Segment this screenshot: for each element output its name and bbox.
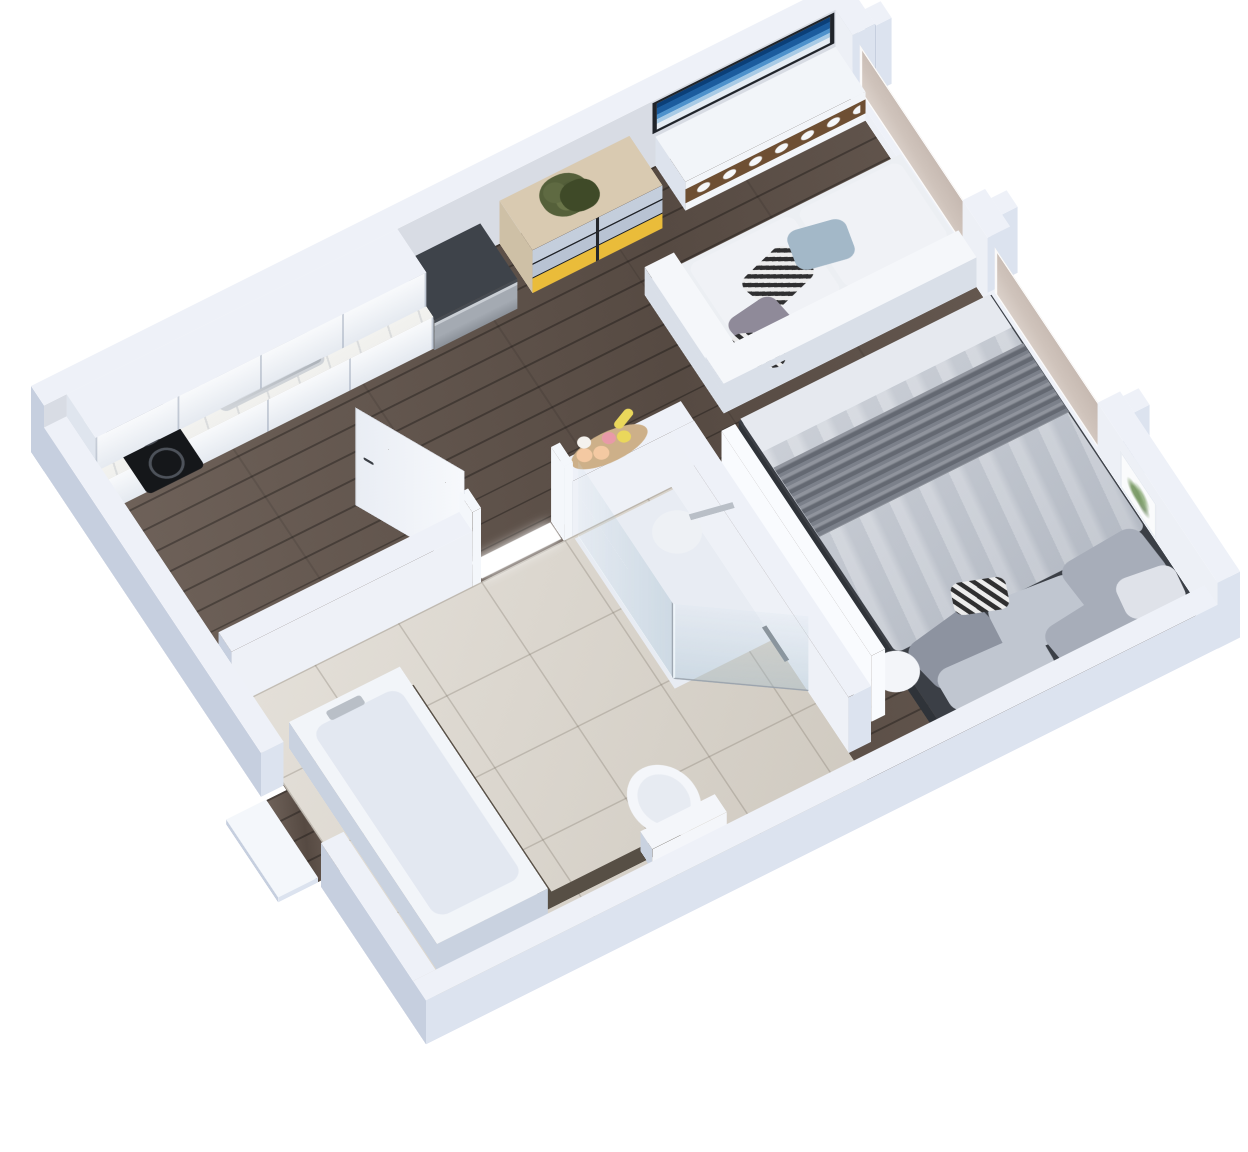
apartment-plan: [31, 45, 1240, 1045]
door-jamb-left-front-face: [472, 508, 481, 587]
floorplan-3d-render: [0, 0, 1248, 1152]
door-jamb-right-front-face: [564, 462, 573, 541]
wardrobe-panel-front-face: [871, 649, 885, 722]
left-wall-upper-front-face: [261, 742, 284, 797]
bathroom-divider-wall-front-face: [848, 686, 871, 753]
shower-glass-angled: [673, 604, 808, 691]
